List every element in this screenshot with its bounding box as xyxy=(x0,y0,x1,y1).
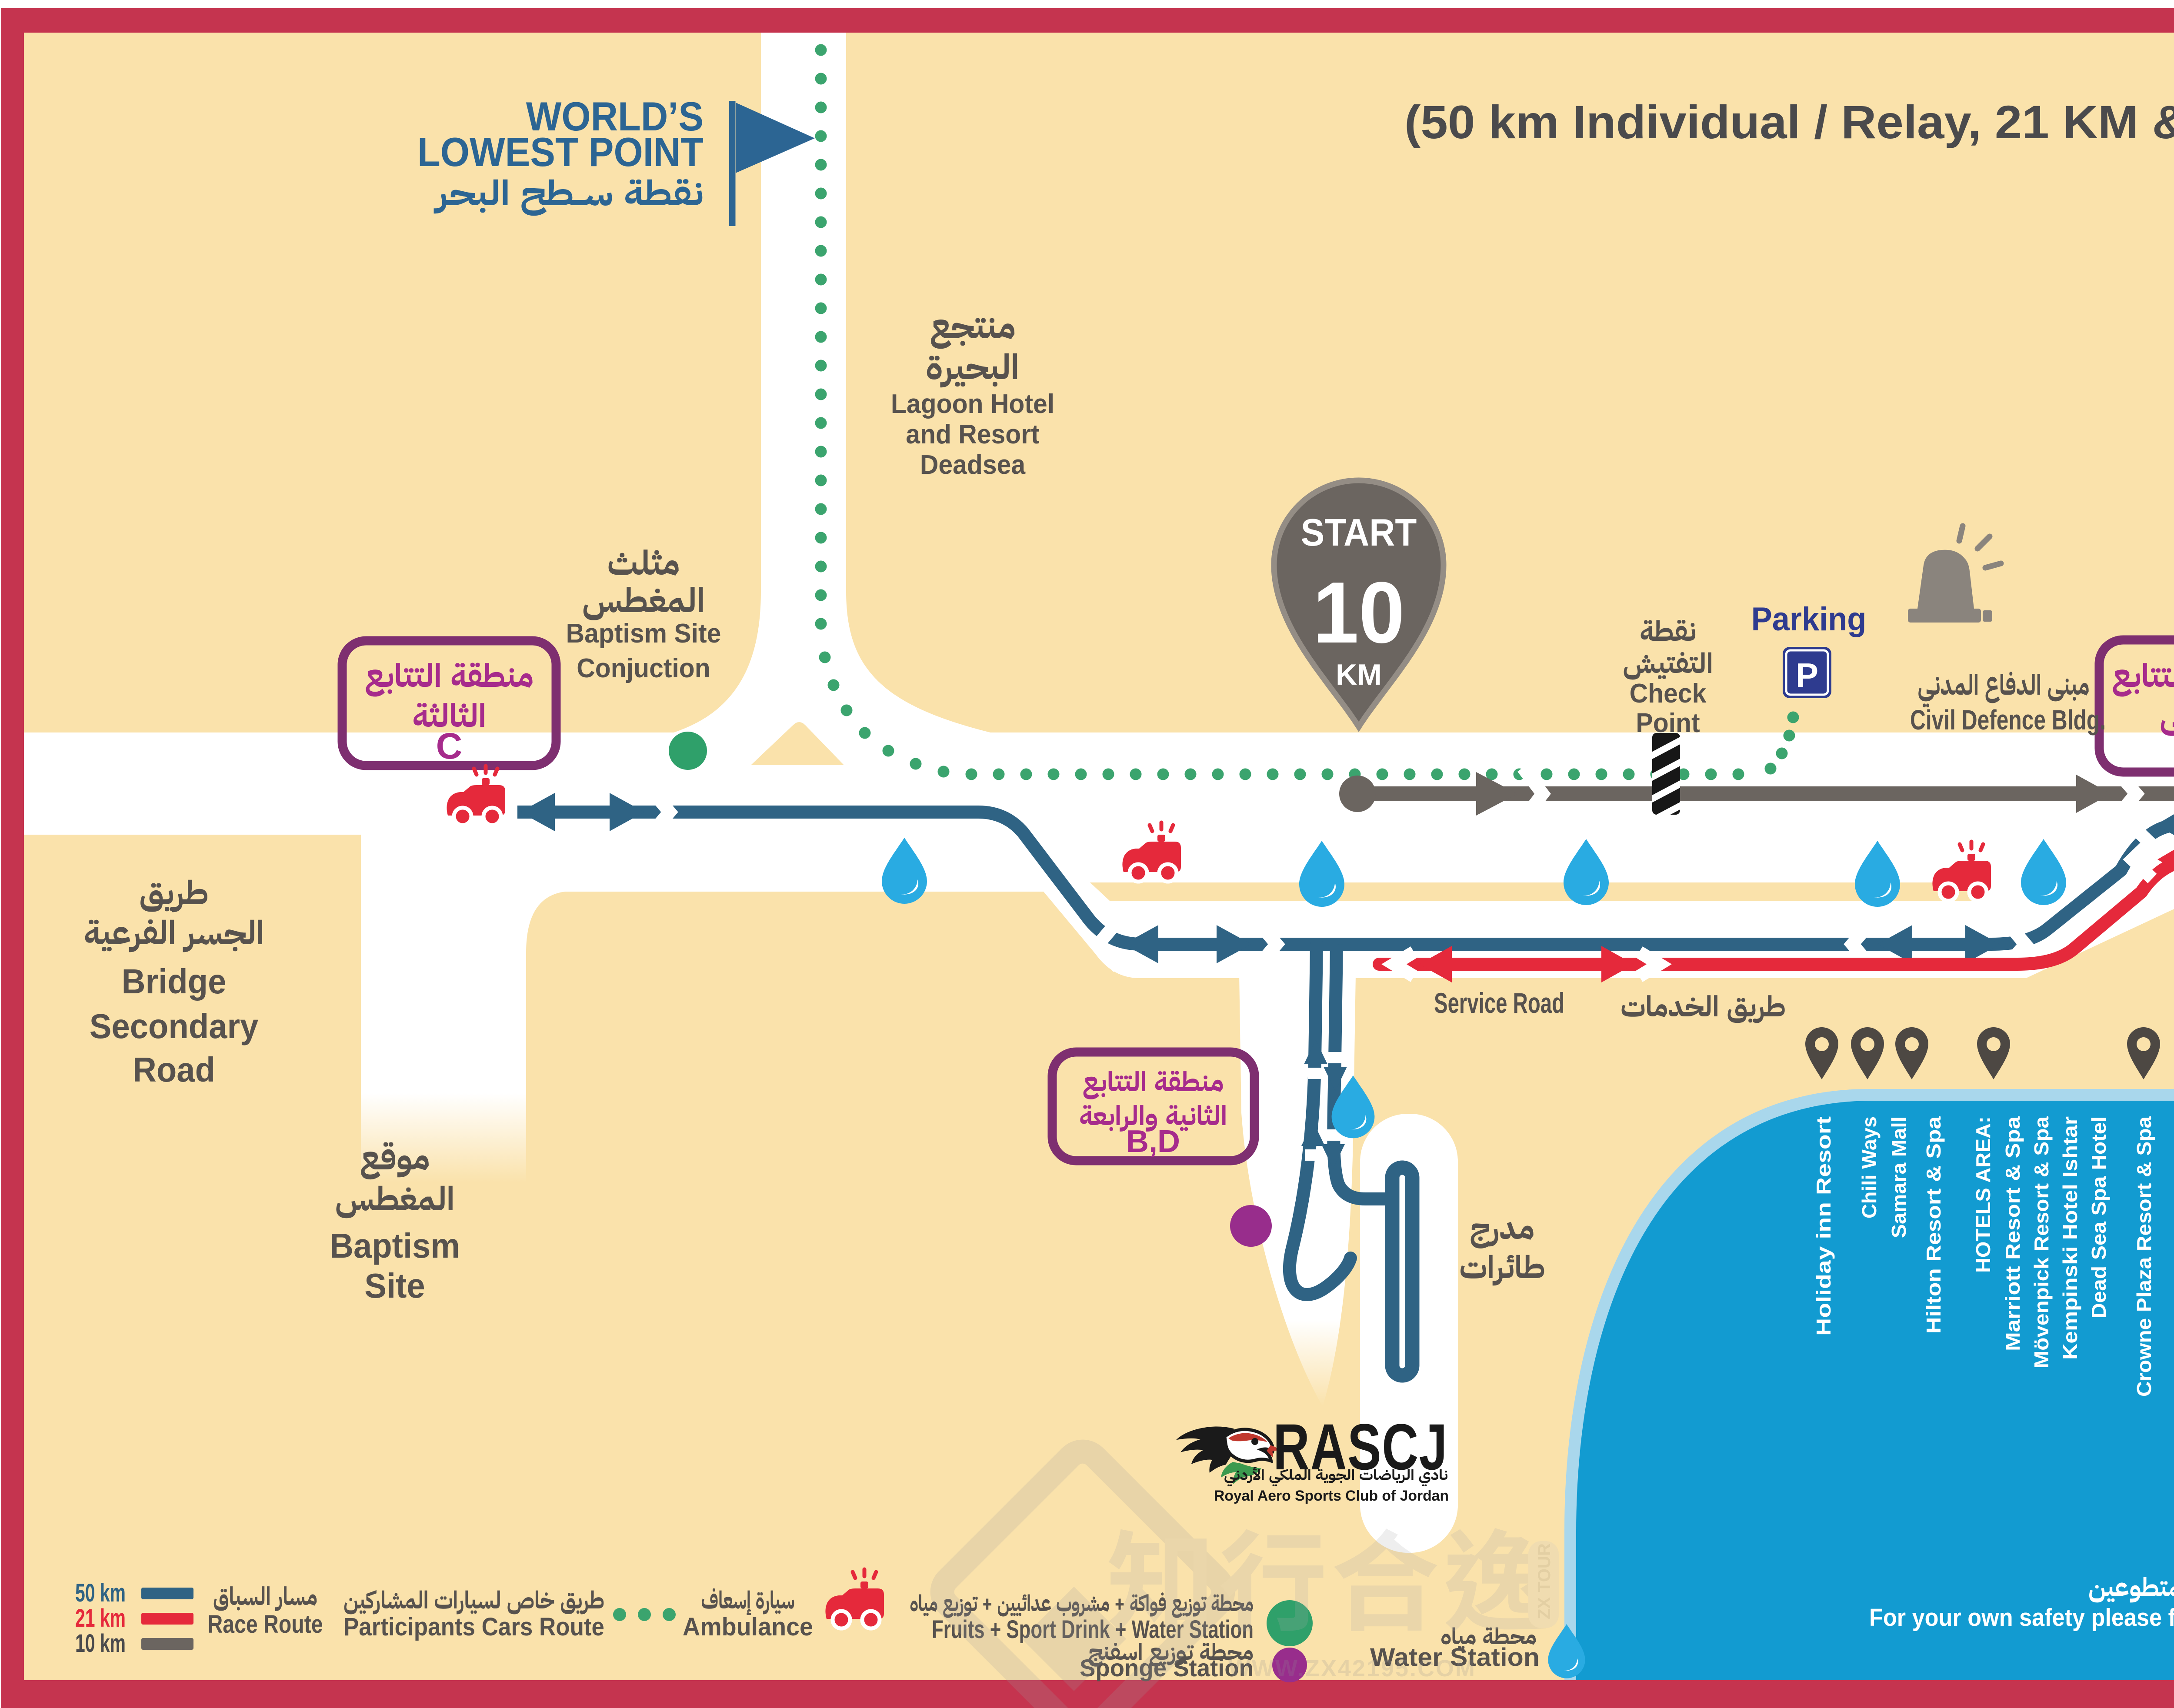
svg-text:P: P xyxy=(1796,656,1818,694)
svg-text:Mövenpick Resort & Spa: Mövenpick Resort & Spa xyxy=(2030,1116,2053,1368)
svg-text:(50 km Individual / Relay, 21: (50 km Individual / Relay, 21 KM & 10 KM… xyxy=(1404,96,2174,148)
svg-text:START: START xyxy=(1301,511,1417,554)
svg-text:Secondary: Secondary xyxy=(90,1006,259,1045)
svg-text:Samara Mall: Samara Mall xyxy=(1887,1116,1910,1238)
svg-text:Hilton Resort & Spa: Hilton Resort & Spa xyxy=(1922,1116,1945,1334)
svg-text:Parking: Parking xyxy=(1751,600,1867,637)
svg-text:Royal Aero Sports Club of Jord: Royal Aero Sports Club of Jordan xyxy=(1214,1488,1449,1504)
svg-text:HOTELS AREA:: HOTELS AREA: xyxy=(1972,1116,1994,1273)
svg-text:and Resort: and Resort xyxy=(906,419,1040,449)
svg-text:LOWEST POINT: LOWEST POINT xyxy=(417,130,704,175)
svg-text:Civil Defence Bldg.: Civil Defence Bldg. xyxy=(1910,704,2106,736)
svg-text:10 km: 10 km xyxy=(75,1629,126,1658)
svg-text:B,D: B,D xyxy=(1126,1124,1180,1159)
svg-text:Site: Site xyxy=(364,1266,425,1305)
svg-text:Ambulance: Ambulance xyxy=(683,1613,813,1641)
svg-text:Bridge: Bridge xyxy=(122,962,227,1001)
svg-text:ZX TOUR: ZX TOUR xyxy=(1535,1543,1554,1619)
svg-text:Crowne Plaza Resort & Spa: Crowne Plaza Resort & Spa xyxy=(2133,1116,2155,1397)
svg-text:Baptism: Baptism xyxy=(330,1226,460,1265)
svg-text:Race Route: Race Route xyxy=(208,1610,323,1638)
svg-text:RASCJ: RASCJ xyxy=(1273,1410,1448,1483)
svg-text:WWW.ZX42195.COM: WWW.ZX42195.COM xyxy=(1228,1655,1476,1681)
svg-text:Lagoon Hotel: Lagoon Hotel xyxy=(891,389,1054,419)
svg-text:Road: Road xyxy=(133,1050,215,1089)
svg-text:C: C xyxy=(436,726,463,766)
svg-text:Kempinski Hotel Ishtar: Kempinski Hotel Ishtar xyxy=(2059,1116,2081,1360)
svg-text:Chili Ways: Chili Ways xyxy=(1858,1116,1881,1219)
svg-text:Check: Check xyxy=(1630,678,1707,709)
svg-text:21 km: 21 km xyxy=(75,1604,126,1632)
svg-text:Point: Point xyxy=(1636,708,1700,738)
svg-text:Dead Sea Spa Hotel: Dead Sea Spa Hotel xyxy=(2087,1116,2110,1318)
svg-text:Service Road: Service Road xyxy=(1434,987,1564,1019)
svg-text:KM: KM xyxy=(1336,658,1382,691)
svg-text:Holiday inn Resort: Holiday inn Resort xyxy=(1812,1116,1835,1336)
svg-text:Participants Cars Route: Participants Cars Route xyxy=(343,1613,604,1641)
svg-text:50 km: 50 km xyxy=(75,1579,126,1607)
svg-text:Baptism Site: Baptism Site xyxy=(566,618,721,649)
svg-text:Conjuction: Conjuction xyxy=(577,653,710,683)
svg-text:For your own safety please fol: For your own safety please follow volunt… xyxy=(1869,1604,2174,1631)
svg-text:10: 10 xyxy=(1313,564,1404,662)
svg-text:Marriott Resort & Spa: Marriott Resort & Spa xyxy=(2001,1116,2024,1351)
svg-text:Deadsea: Deadsea xyxy=(920,449,1026,480)
